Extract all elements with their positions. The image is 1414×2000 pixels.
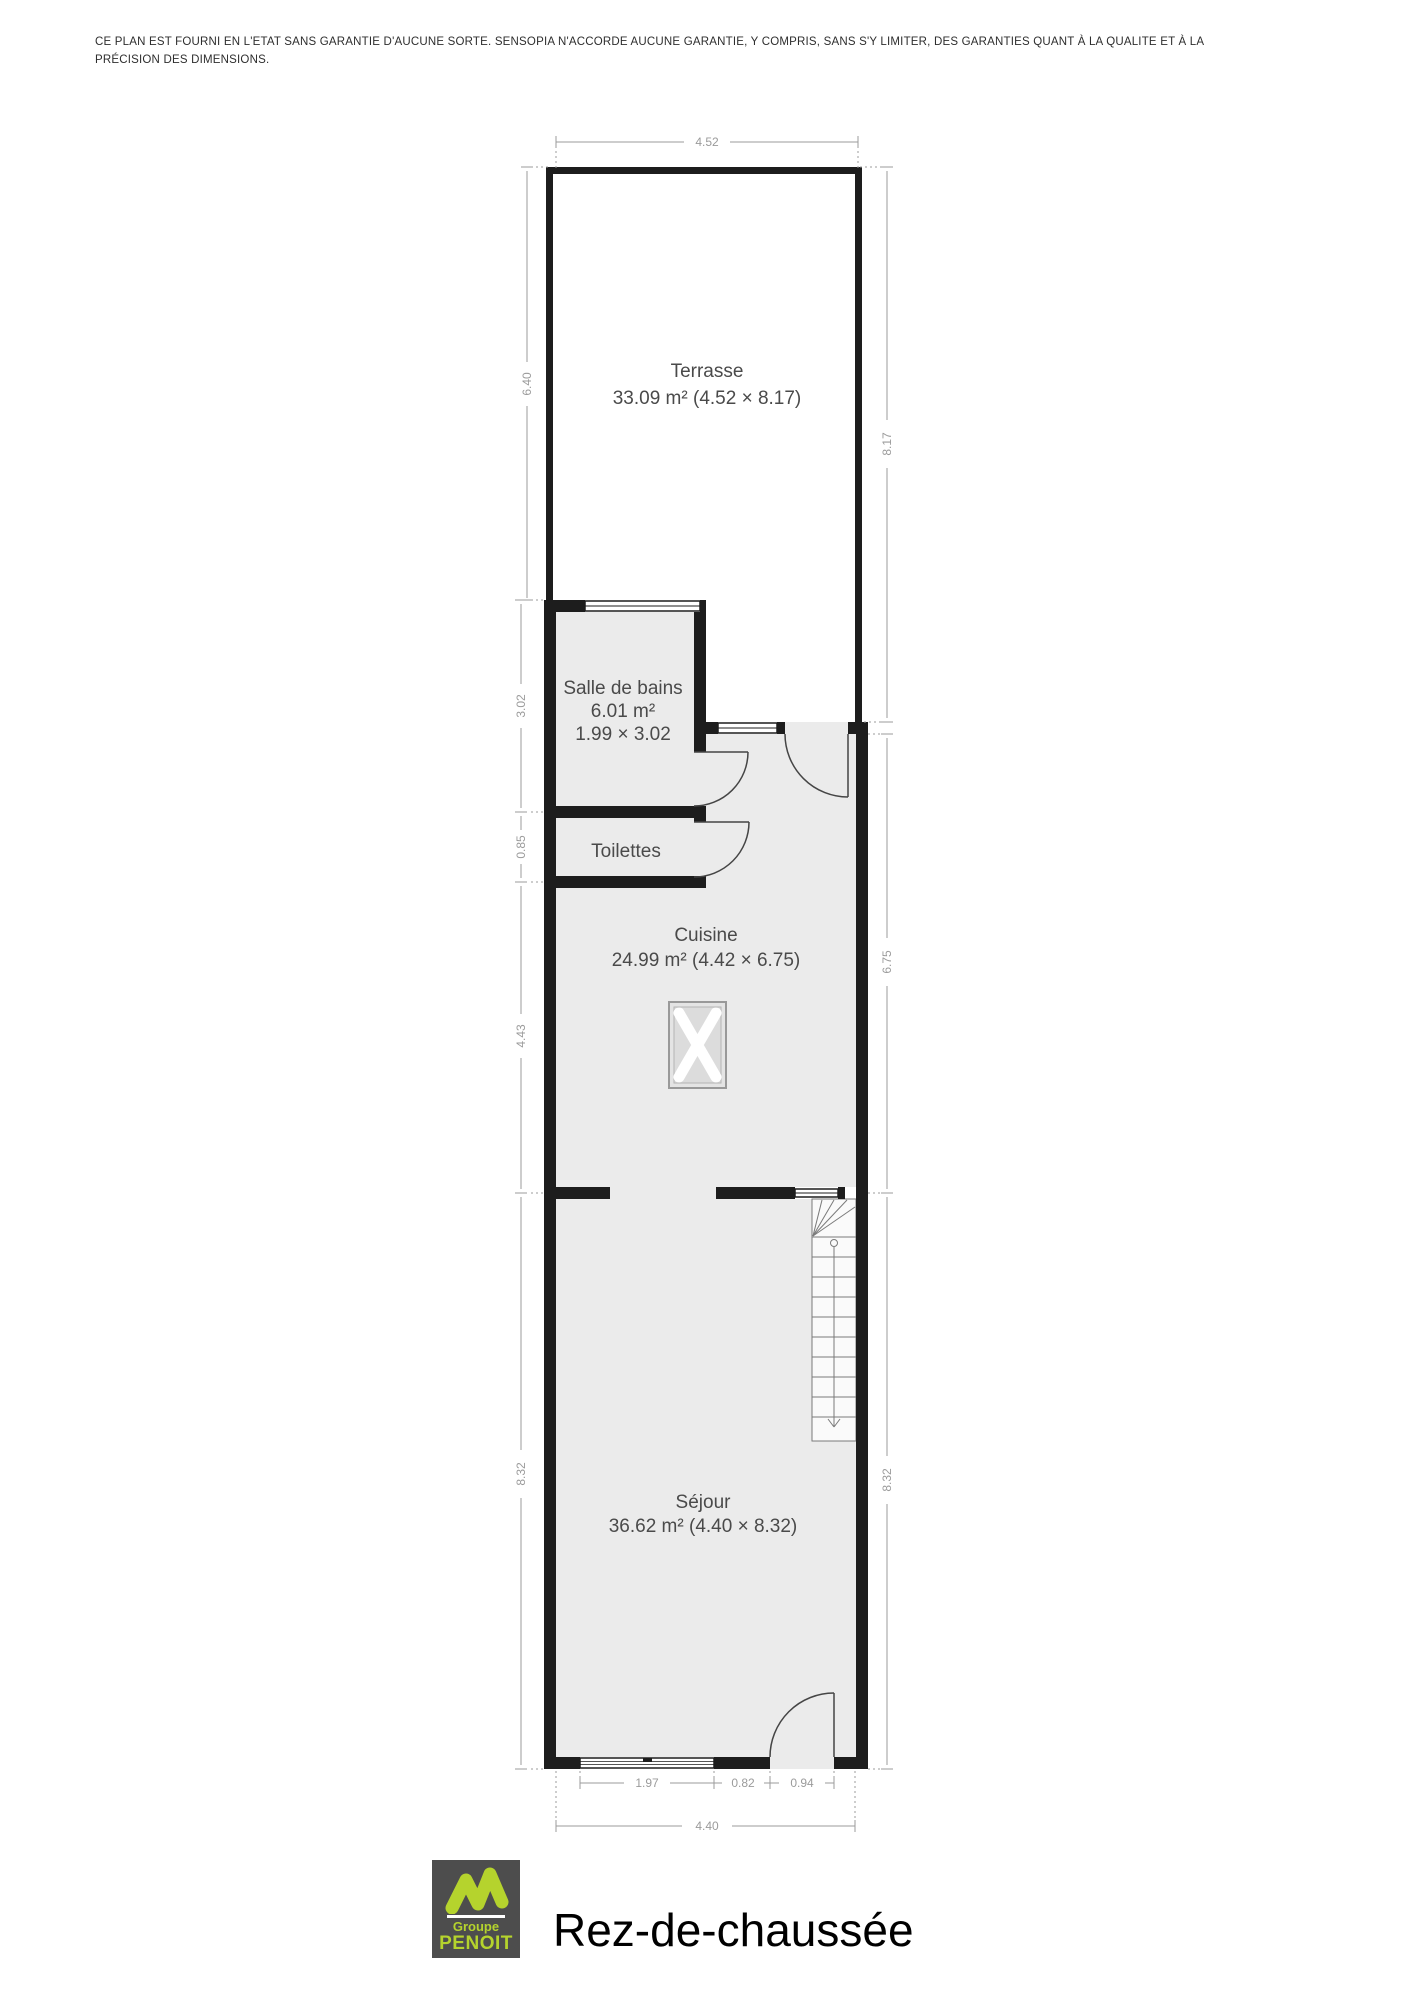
stair-opening-window <box>795 1189 838 1197</box>
dim-left-toilettes: 0.85 <box>514 832 528 861</box>
dim-right-sejour: 8.32 <box>880 1465 894 1494</box>
cuisine-label: Cuisine <box>674 925 737 947</box>
salle-de-bains-area: 6.01 m² <box>591 701 655 723</box>
dim-left-salle-de-bains: 3.02 <box>514 691 528 720</box>
sejour-area: 36.62 m² (4.40 × 8.32) <box>609 1516 798 1538</box>
toilettes-label: Toilettes <box>591 841 661 863</box>
salle-de-bains-dims: 1.99 × 3.02 <box>575 724 671 746</box>
sejour-label: Séjour <box>676 1492 731 1514</box>
dim-bottom-door: 0.94 <box>787 1776 816 1790</box>
stove-icon <box>669 1002 726 1088</box>
salle-de-bains-label: Salle de bains <box>563 678 682 700</box>
floor-plan-drawing <box>0 0 1414 2000</box>
living-room-window <box>580 1758 714 1768</box>
logo-divider <box>447 1915 505 1918</box>
logo-mountains-icon <box>440 1864 512 1914</box>
dim-top-width: 4.52 <box>692 135 721 149</box>
dim-bottom-pier: 0.82 <box>728 1776 757 1790</box>
terrasse-area: 33.09 m² (4.52 × 8.17) <box>613 388 802 410</box>
dim-bottom-total: 4.40 <box>692 1819 721 1833</box>
dim-right-cuisine: 6.75 <box>880 947 894 976</box>
terrasse-label: Terrasse <box>671 361 744 383</box>
dim-bottom-window: 1.97 <box>632 1776 661 1790</box>
logo-text-penoit: PENOIT <box>439 1934 513 1954</box>
dim-left-terrasse: 6.40 <box>520 369 534 398</box>
floor-plan-page: CE PLAN EST FOURNI EN L'ETAT SANS GARANT… <box>0 0 1414 2000</box>
dim-left-cuisine: 4.43 <box>514 1021 528 1050</box>
groupe-penoit-logo: Groupe PENOIT <box>432 1860 520 1958</box>
cuisine-area: 24.99 m² (4.42 × 6.75) <box>612 950 801 972</box>
logo-text-groupe: Groupe <box>453 1920 499 1934</box>
kitchen-window <box>718 723 777 733</box>
dim-right-terrasse: 8.17 <box>880 429 894 458</box>
bathroom-window <box>585 601 700 611</box>
floor-title: Rez-de-chaussée <box>553 1903 914 1957</box>
dim-left-sejour: 8.32 <box>514 1459 528 1488</box>
staircase <box>812 1199 856 1441</box>
